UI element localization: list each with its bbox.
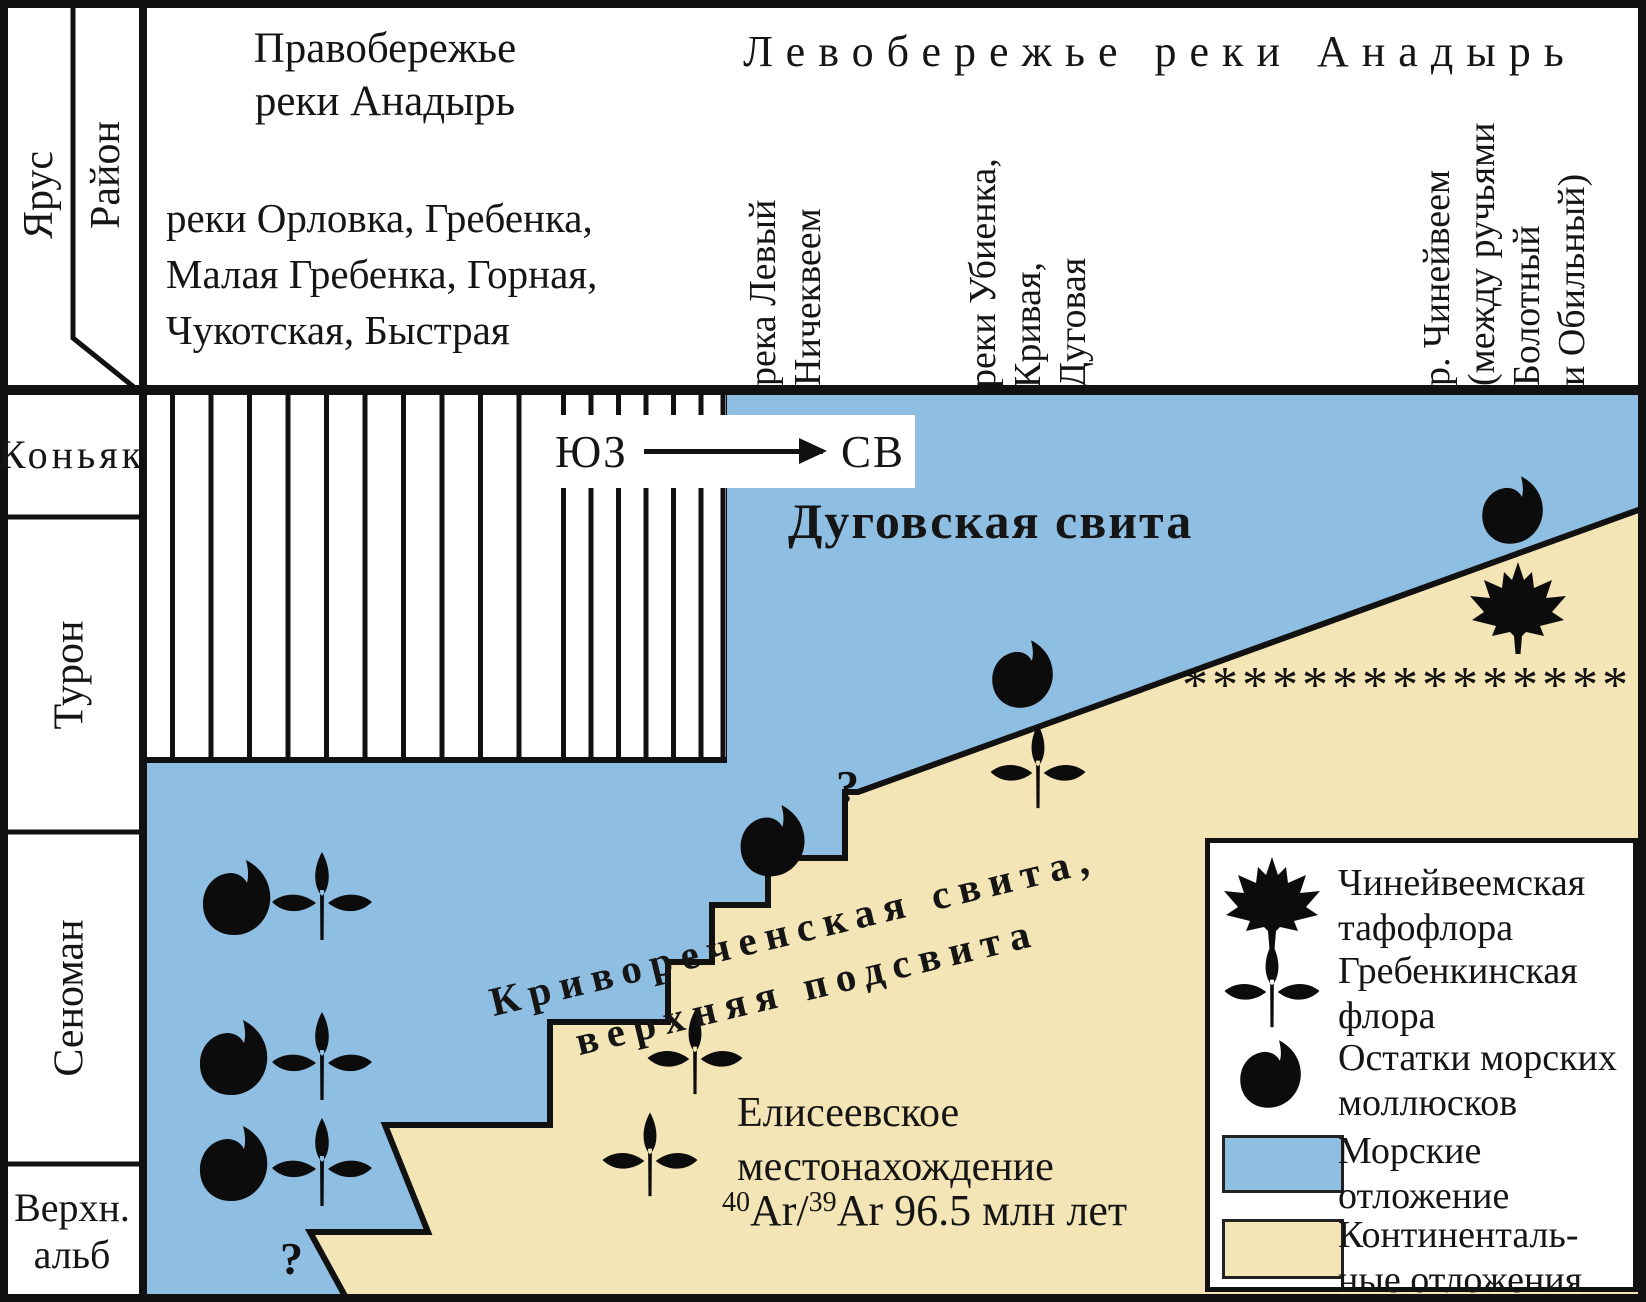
stage-label-upper-albian: Верхн. альб	[14, 1184, 130, 1278]
continental-swatch	[1222, 1219, 1344, 1279]
rivers-line3: Чукотская, Быстрая	[166, 302, 597, 358]
legend-label-continental: Континенталь- ные отложения	[1338, 1213, 1582, 1302]
marine-swatch	[1222, 1135, 1344, 1193]
direction-from-label: ЮЗ	[555, 426, 628, 478]
column-ubienka-label: реки Убиенка, Кривая, Дуговая	[961, 158, 1096, 388]
ubienka-line1: реки Убиенка,	[961, 158, 1006, 388]
right-bank-title-line2: реки Анадырь	[150, 75, 620, 128]
eliseevskoe-locality-label: Елисеевское местонахождение	[737, 1086, 1054, 1194]
direction-to-label: СВ	[841, 426, 905, 478]
right-bank-rivers: реки Орловка, Гребенка, Малая Гребенка, …	[166, 190, 597, 358]
legend-item-continental: Континенталь- ные отложения	[1210, 1211, 1633, 1301]
legend-continental-line1: Континенталь-	[1338, 1213, 1582, 1258]
argon-age-label: 40Ar/39Ar 96.5 млн лет	[722, 1185, 1127, 1236]
stage-cell-cenoman: Сеноман	[6, 835, 134, 1161]
column-chineyveem-label: р. Чинейвеем (между ручьями Болотный и О…	[1415, 123, 1595, 386]
trefoil-flora-icon	[1212, 939, 1332, 1039]
legend-marine-line1: Морские	[1338, 1129, 1509, 1174]
chineyveem-line1: р. Чинейвеем	[1415, 123, 1460, 386]
nichekveem-line1: река Левый	[741, 200, 786, 386]
legend-mollusks-line2: моллюсков	[1338, 1081, 1617, 1126]
stage-label-turon: Турон	[46, 620, 94, 729]
legend-flora-line1: Гребенкинская	[1338, 949, 1578, 994]
region-column-header-label: Район	[82, 121, 130, 229]
question-mark: ?	[280, 1232, 303, 1285]
upper-albian-line1: Верхн.	[14, 1184, 130, 1231]
ubienka-line2: Кривая,	[1006, 158, 1051, 388]
legend-item-flora: Гребенкинская флора	[1210, 945, 1633, 1037]
legend: Чинейвеемская тафофлора Гребенкинская фл…	[1205, 838, 1638, 1292]
legend-label-taphoflora: Чинейвеемская тафофлора	[1338, 861, 1585, 951]
legend-label-flora: Гребенкинская флора	[1338, 949, 1578, 1039]
stage-cell-upper-albian: Верхн. альб	[6, 1167, 138, 1295]
right-bank-title: Правобережье реки Анадырь	[150, 22, 620, 128]
direction-indicator: ЮЗ СВ	[545, 415, 915, 488]
ar-superscript-40: 40	[722, 1187, 750, 1218]
legend-mollusks-line1: Остатки морских	[1338, 1036, 1617, 1081]
column-nichekveem-label: река Левый Ничеквеем	[741, 200, 831, 386]
legend-item-marine: Морские отложение	[1210, 1129, 1633, 1217]
asterisk-row: ***************	[1182, 656, 1632, 715]
stage-cell-turon: Турон	[6, 520, 134, 830]
question-mark: ?	[836, 760, 859, 813]
legend-taphoflora-line1: Чинейвеемская	[1338, 861, 1585, 906]
legend-label-marine: Морские отложение	[1338, 1129, 1509, 1219]
region-column-header: Район	[74, 10, 138, 340]
hatch-stripes-wide	[145, 392, 545, 760]
stage-column-header: Ярус	[6, 10, 72, 380]
chineyveem-line3: Болотный	[1505, 123, 1550, 386]
dugovskaya-formation-label: Дуговская свита	[788, 492, 1193, 550]
right-bank-title-line1: Правобережье	[150, 22, 620, 75]
ar-superscript-39: 39	[809, 1187, 837, 1218]
ubienka-line3: Дуговая	[1051, 158, 1096, 388]
chineyveem-line2: (между ручьями	[1460, 123, 1505, 386]
ar-slash: Ar/	[750, 1186, 809, 1235]
legend-continental-line2: ные отложения	[1338, 1258, 1582, 1302]
left-bank-title: Левобережье реки Анадырь	[700, 26, 1620, 77]
legend-item-mollusks: Остатки морских моллюсков	[1210, 1032, 1633, 1128]
legend-label-mollusks: Остатки морских моллюсков	[1338, 1036, 1617, 1126]
direction-arrow-icon	[644, 449, 823, 454]
mollusk-icon	[1212, 1026, 1332, 1126]
stratigraphic-correlation-diagram: Ярус Район Правобережье реки Анадырь рек…	[0, 0, 1646, 1302]
nichekveem-line2: Ничеквеем	[786, 200, 831, 386]
stage-label-konyak: Коньяк	[0, 431, 145, 478]
stage-label-cenoman: Сеноман	[46, 919, 94, 1076]
eliseevskoe-line1: Елисеевское	[737, 1086, 1054, 1140]
rivers-line1: реки Орловка, Гребенка,	[166, 190, 597, 246]
upper-albian-line2: альб	[14, 1231, 130, 1278]
rivers-line2: Малая Гребенка, Горная,	[166, 246, 597, 302]
ar-age-value: Ar 96.5 млн лет	[837, 1186, 1128, 1235]
chineyveem-line4: и Обильный)	[1550, 123, 1595, 386]
stage-cell-konyak: Коньяк	[6, 394, 138, 514]
stage-column-header-label: Ярус	[15, 151, 63, 239]
